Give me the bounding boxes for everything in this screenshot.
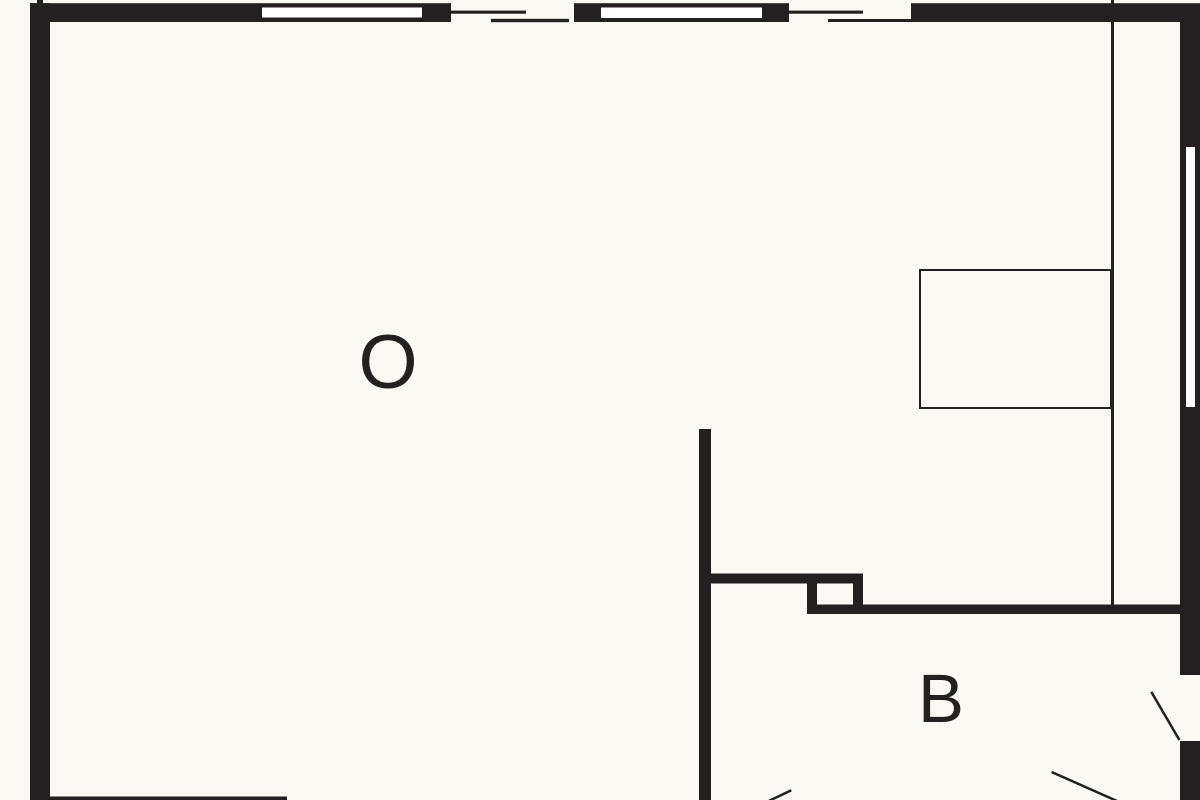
svg-text:B: B (918, 660, 964, 737)
svg-text:O: O (358, 320, 417, 405)
